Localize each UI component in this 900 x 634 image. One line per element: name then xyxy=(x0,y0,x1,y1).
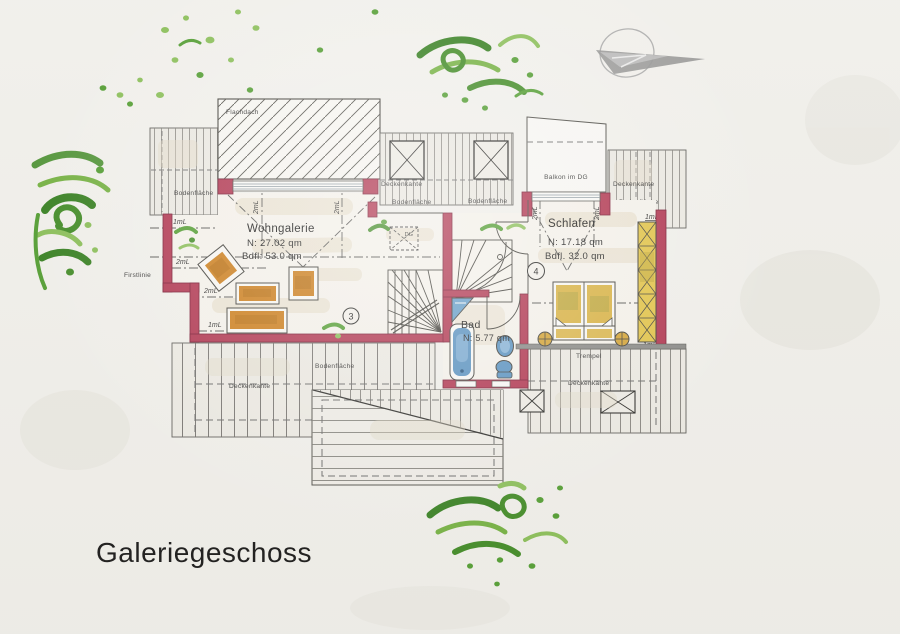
label-bodenflaeche-left: Bodenfläche xyxy=(174,190,213,197)
page-title: Galeriegeschoss xyxy=(96,537,312,569)
label-deckenkante-bottom-left: Deckenkante xyxy=(229,383,270,390)
room-area-floor: Bdfl. 32.0 qm xyxy=(545,251,605,262)
skylight-marker xyxy=(474,141,508,179)
label-2ml: 2mL xyxy=(532,206,539,221)
window-band-bedroom xyxy=(532,192,600,201)
label-deckenkante-right: Deckenkante xyxy=(613,181,654,188)
flat-roof: Flachdach xyxy=(218,99,380,179)
sofa-small xyxy=(236,283,279,304)
label-flachdach: Flachdach xyxy=(226,109,259,116)
wardrobe xyxy=(638,222,656,342)
skylight-marker xyxy=(390,141,424,179)
room-area-floor: Bdfl: 53.0 qm xyxy=(242,251,302,262)
bed xyxy=(553,282,615,340)
label-bodenflaeche-top-1: Bodenfläche xyxy=(392,199,431,206)
label-2ml: 2mL xyxy=(334,200,341,215)
label-firstlinie: Firstlinie xyxy=(124,272,151,279)
label-1ml: 1mL xyxy=(173,219,187,226)
roof-strip-bottom-right: Trempel Deckenkante xyxy=(520,349,686,433)
room-number-4: 4 xyxy=(533,267,538,277)
room-number-badge: 4 xyxy=(528,263,545,280)
room-area-net: N: 17.18 qm xyxy=(548,237,603,248)
room-name: Bad xyxy=(461,319,481,331)
room-number-badge: 3 xyxy=(343,308,359,324)
nightstand-right xyxy=(615,332,629,346)
roof-strip-top-center: Deckenkante Bodenfläche Bodenfläche xyxy=(380,133,513,206)
floorplan-page: Bodenfläche Flachdach Deckenkante Bodenf… xyxy=(0,0,900,634)
label-deckenkante-bottom-right: Deckenkante xyxy=(568,380,609,387)
label-deckenkante-top: Deckenkante xyxy=(381,181,422,188)
room-number-3: 3 xyxy=(348,312,353,322)
balcony: Balkon im DG xyxy=(527,117,606,192)
room-name: Schlafen xyxy=(548,218,595,230)
room-name: Wohngalerie xyxy=(247,223,315,235)
label-balkon: Balkon im DG xyxy=(544,174,588,181)
nightstand-left xyxy=(538,332,552,346)
stairs-left xyxy=(388,270,443,334)
skylight-marker xyxy=(520,390,544,412)
label-2ml: 2mL xyxy=(253,200,260,215)
sofa-large xyxy=(227,308,287,333)
label-2ml: 2mL xyxy=(203,288,218,295)
toilet xyxy=(496,361,512,379)
label-dg: DG xyxy=(405,232,413,238)
label-bodenflaeche-bottom: Bodenfläche xyxy=(315,363,354,370)
label-2ml: 2mL xyxy=(175,259,190,266)
paper-plane-logo-icon xyxy=(596,25,705,80)
room-area-net: N: 27.02 qm xyxy=(247,238,302,249)
label-trempel: Trempel xyxy=(576,353,602,360)
room-area-net: N: 5.77 qm xyxy=(463,333,510,343)
window-band-living xyxy=(233,181,363,191)
armchair xyxy=(289,267,318,300)
roof-strip-left: Bodenfläche xyxy=(150,128,220,215)
label-bodenflaeche-top-2: Bodenfläche xyxy=(468,198,507,205)
label-1ml: 1mL xyxy=(208,322,222,329)
